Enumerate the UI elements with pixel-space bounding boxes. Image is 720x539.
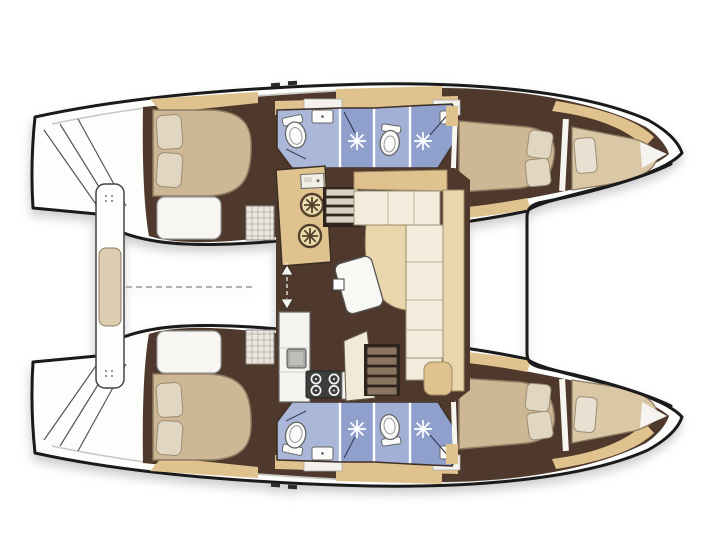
trampoline-beam-line: [527, 164, 671, 406]
pillow: [156, 114, 183, 150]
pillow: [574, 137, 598, 174]
sofa-corner: [424, 362, 452, 395]
cockpit-bench: [96, 184, 124, 388]
shower-icon: [348, 132, 366, 150]
galley-appliance: [301, 173, 325, 188]
cleat-icon: [288, 81, 297, 85]
boat: [32, 81, 682, 490]
sofa-back: [443, 190, 464, 391]
berth-seat: [157, 197, 221, 239]
slatted-table: [246, 206, 274, 240]
shower-icon: [414, 132, 432, 150]
stairs-to-starboard-hull: [364, 344, 400, 396]
pillow: [156, 152, 183, 188]
pillow: [526, 129, 554, 159]
burner-icon: [301, 194, 323, 216]
bench-cushion: [99, 248, 121, 326]
mast-post: [333, 279, 344, 290]
salon: [276, 166, 470, 402]
cleat-icon: [271, 83, 280, 88]
pillow: [525, 158, 552, 187]
sofa-back: [354, 170, 447, 191]
stove-icon: [306, 371, 343, 398]
floor-plan-svg: [0, 0, 720, 539]
galley-unit: [276, 166, 331, 266]
burner-icon: [299, 225, 321, 247]
sofa-seat: [406, 225, 443, 358]
sofa-seat: [354, 191, 440, 225]
galley-appliance: [287, 349, 306, 368]
bulkhead-trim: [446, 106, 458, 126]
sink-icon: [312, 110, 333, 123]
catamaran-floor-plan: [0, 0, 720, 539]
